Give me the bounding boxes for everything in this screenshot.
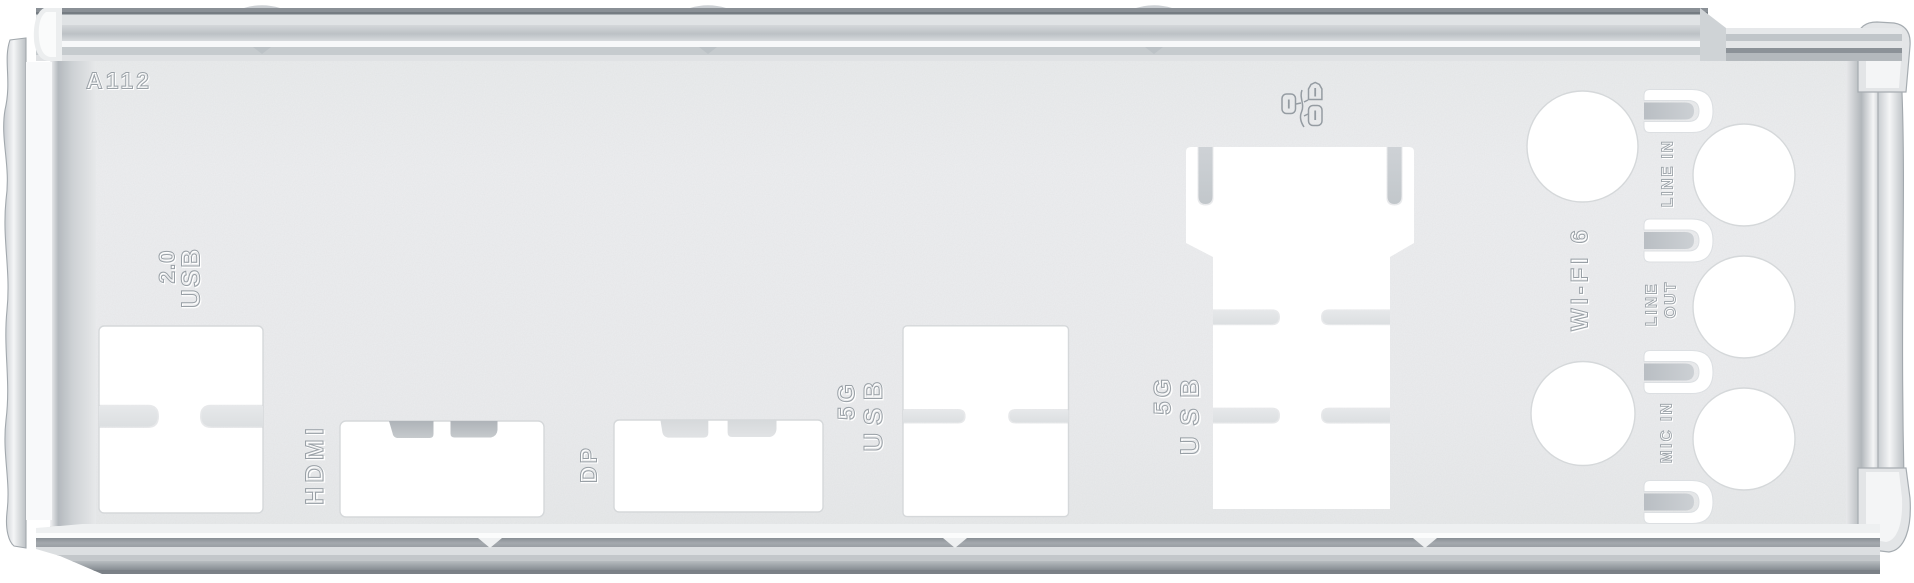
svg-text:USB: USB [858, 382, 888, 452]
svg-text:OUT: OUT [1663, 282, 1680, 319]
svg-text:5G: 5G [833, 384, 860, 420]
svg-text:LINE: LINE [1644, 284, 1661, 326]
svg-text:5G: 5G [1150, 379, 1177, 415]
svg-text:USB: USB [1175, 379, 1205, 455]
svg-text:USB: USB [176, 249, 206, 308]
svg-text:HDMI: HDMI [301, 428, 329, 505]
svg-text:MIC IN: MIC IN [1659, 403, 1676, 463]
